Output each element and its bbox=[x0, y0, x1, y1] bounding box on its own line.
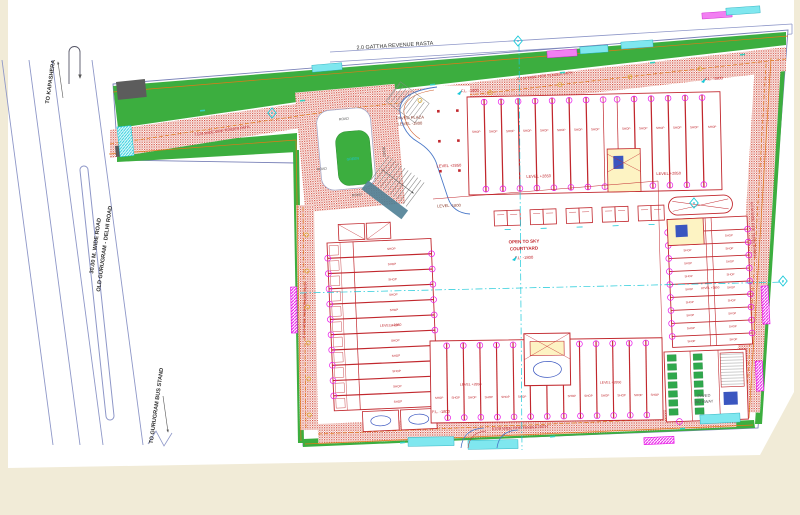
level-label: LEVEL +2850 bbox=[460, 382, 482, 386]
paved-plaza-label1: PAVED PLAZA bbox=[396, 115, 424, 121]
toilet-fixture bbox=[667, 364, 676, 371]
gate-marker bbox=[761, 286, 770, 324]
note-chip-cyan bbox=[408, 437, 454, 447]
shop-label: SHOP bbox=[472, 130, 481, 134]
ffl-label: F.L. -1800 bbox=[461, 87, 480, 93]
shop-label: SHOP bbox=[393, 384, 402, 388]
kiosk bbox=[651, 205, 665, 220]
shop-label: SHOP bbox=[725, 246, 733, 250]
toilet-fixture bbox=[695, 408, 704, 415]
diamond-dot bbox=[782, 280, 784, 282]
toilet-fixture bbox=[668, 382, 677, 389]
shop-label: SHOP bbox=[726, 272, 734, 276]
shop-label: SHOP bbox=[634, 393, 643, 397]
lift-shaft bbox=[723, 391, 737, 404]
shop-label: SHOP bbox=[568, 394, 577, 398]
ffl-label: F.L. -1800 bbox=[432, 409, 451, 414]
stair-level-label: LEVEL -1800 bbox=[437, 203, 462, 209]
guard-house-block bbox=[116, 79, 147, 100]
shop-label: SHOP bbox=[651, 393, 660, 397]
kiosk bbox=[579, 208, 593, 223]
toilet-fixture bbox=[693, 354, 702, 361]
kiosk bbox=[615, 206, 629, 221]
shop-label: SHOP bbox=[601, 394, 610, 398]
shop-label: SHOP bbox=[389, 292, 398, 296]
block-top-shops: SHOPSHOPSHOPSHOPSHOPSHOPSHOPSHOPSHOPSHOP… bbox=[467, 92, 722, 195]
shop-label: SHOP bbox=[557, 128, 566, 132]
shop-label: SHOP bbox=[468, 395, 477, 399]
toilet-fixture bbox=[694, 372, 703, 379]
shop-label: SHOP bbox=[391, 338, 400, 342]
level-label: LEVEL +2850 bbox=[526, 173, 552, 179]
shop-label: SHOP bbox=[617, 393, 626, 397]
kiosk bbox=[507, 210, 521, 225]
shop-label: SHOP bbox=[523, 129, 532, 133]
shop-label: SHOP bbox=[388, 277, 397, 281]
toilet-fixture bbox=[694, 381, 703, 388]
shop-label: SHOP bbox=[435, 396, 444, 400]
column-marker bbox=[456, 109, 459, 112]
note-chip-cyan bbox=[700, 413, 740, 424]
kiosk bbox=[494, 211, 508, 226]
diamond-dot bbox=[271, 112, 273, 114]
shop-label: SHOP bbox=[639, 126, 648, 130]
column-marker bbox=[458, 169, 461, 172]
toilet-fixture bbox=[693, 363, 702, 370]
shop-label: SHOP bbox=[622, 127, 631, 131]
shop-label: SHOP bbox=[687, 326, 695, 330]
column-marker bbox=[437, 110, 440, 113]
shop-label: SHOP bbox=[387, 247, 396, 251]
shop-label: SHOP bbox=[489, 129, 498, 133]
diamond-dot bbox=[517, 40, 519, 42]
shops-outline bbox=[467, 92, 722, 195]
stair-core bbox=[607, 148, 641, 192]
kiosk bbox=[602, 207, 616, 222]
column-marker bbox=[439, 170, 442, 173]
shop-label: SHOP bbox=[518, 395, 527, 399]
column-marker bbox=[457, 139, 460, 142]
toilet-fixture bbox=[669, 400, 678, 407]
paved-plaza-label2: LEVEL -1800 bbox=[397, 121, 423, 127]
kiosk bbox=[566, 208, 580, 223]
shop-label: SHOP bbox=[728, 311, 736, 315]
courtyard-label1: OPEN TO SKY bbox=[509, 238, 540, 244]
toilet-fixture bbox=[667, 355, 676, 362]
shop-label: SHOP bbox=[729, 324, 737, 328]
toilet-fixture bbox=[669, 409, 678, 416]
drawing-canvas: TO KAPASHERA 30.00 M. WIDE ROAD OLD GURU… bbox=[0, 0, 800, 515]
shop-label: SHOP bbox=[725, 233, 733, 237]
shop-label: SHOP bbox=[501, 395, 510, 399]
shop-label: SHOP bbox=[390, 308, 399, 312]
ffl-label: F.L. -1800 bbox=[705, 75, 724, 81]
block-bottom-shops: SHOPSHOPSHOPSHOPSHOPSHOPSHOPSHOPSHOPSHOP… bbox=[430, 332, 663, 423]
toilet-fixture bbox=[668, 391, 677, 398]
shop-label: SHOP bbox=[485, 395, 494, 399]
courtyard-ffl-label: F.L. -1800 bbox=[515, 255, 534, 261]
site-plan-svg: TO KAPASHERA 30.00 M. WIDE ROAD OLD GURU… bbox=[0, 0, 800, 515]
shop-label: SHOP bbox=[540, 128, 549, 132]
kiosk bbox=[530, 209, 544, 224]
kiosk bbox=[543, 209, 557, 224]
shop-label: SHOP bbox=[729, 337, 737, 341]
block-left-shops: SHOPSHOPSHOPSHOPSHOPSHOPSHOPSHOPSHOPSHOP… bbox=[323, 220, 442, 433]
lift-shaft bbox=[675, 225, 688, 238]
shop-label: SHOP bbox=[685, 287, 693, 291]
note-chip-cyan bbox=[468, 440, 518, 450]
shop-label: SHOP bbox=[506, 129, 515, 133]
shop-label: SHOP bbox=[727, 285, 735, 289]
column-marker bbox=[438, 140, 441, 143]
gate-marker bbox=[755, 361, 764, 391]
level-label: LEVEL +2850 bbox=[600, 380, 622, 384]
diamond-dot bbox=[693, 202, 695, 204]
shop-label: SHOP bbox=[708, 125, 717, 129]
paved-pathway-label2: PATHWAY bbox=[694, 398, 713, 404]
shop-label: SHOP bbox=[388, 262, 397, 266]
shop-label: SHOP bbox=[574, 128, 583, 132]
service-unit bbox=[362, 410, 399, 432]
shop-label: SHOP bbox=[394, 399, 403, 403]
shop-label: SHOP bbox=[726, 259, 734, 263]
shop-label: SHOP bbox=[451, 396, 460, 400]
shop-label: SHOP bbox=[685, 274, 693, 278]
entry-gate-hatch bbox=[117, 126, 134, 157]
shop-label: SHOP bbox=[683, 248, 691, 252]
level-label: LEVEL +2850 bbox=[701, 285, 720, 290]
hall-level-label: LEVEL +2850 bbox=[437, 163, 463, 169]
shop-label: SHOP bbox=[591, 127, 600, 131]
courtyard-label2: COURTYARD bbox=[510, 245, 539, 251]
shop-label: SHOP bbox=[690, 125, 699, 129]
shop-label: SHOP bbox=[392, 369, 401, 373]
shop-label: SHOP bbox=[673, 126, 682, 130]
shop-label: SHOP bbox=[584, 394, 593, 398]
gate-marker bbox=[291, 287, 298, 333]
shop-label: SHOP bbox=[686, 313, 694, 317]
shop-label: SHOP bbox=[684, 261, 692, 265]
shop-label: SHOP bbox=[687, 339, 695, 343]
gate-marker bbox=[644, 436, 674, 444]
kiosk bbox=[638, 206, 652, 221]
shop-label: SHOP bbox=[392, 354, 401, 358]
shop-label: SHOP bbox=[656, 126, 665, 130]
toilet-fixture bbox=[668, 373, 677, 380]
paved-pathway-label1: PAVED bbox=[697, 393, 710, 399]
level-label: LEVEL +2850 bbox=[656, 171, 682, 177]
stair-flight bbox=[720, 352, 744, 387]
shop-label: SHOP bbox=[686, 300, 694, 304]
shop-label: SHOP bbox=[728, 298, 736, 302]
lift-shaft bbox=[613, 156, 623, 169]
